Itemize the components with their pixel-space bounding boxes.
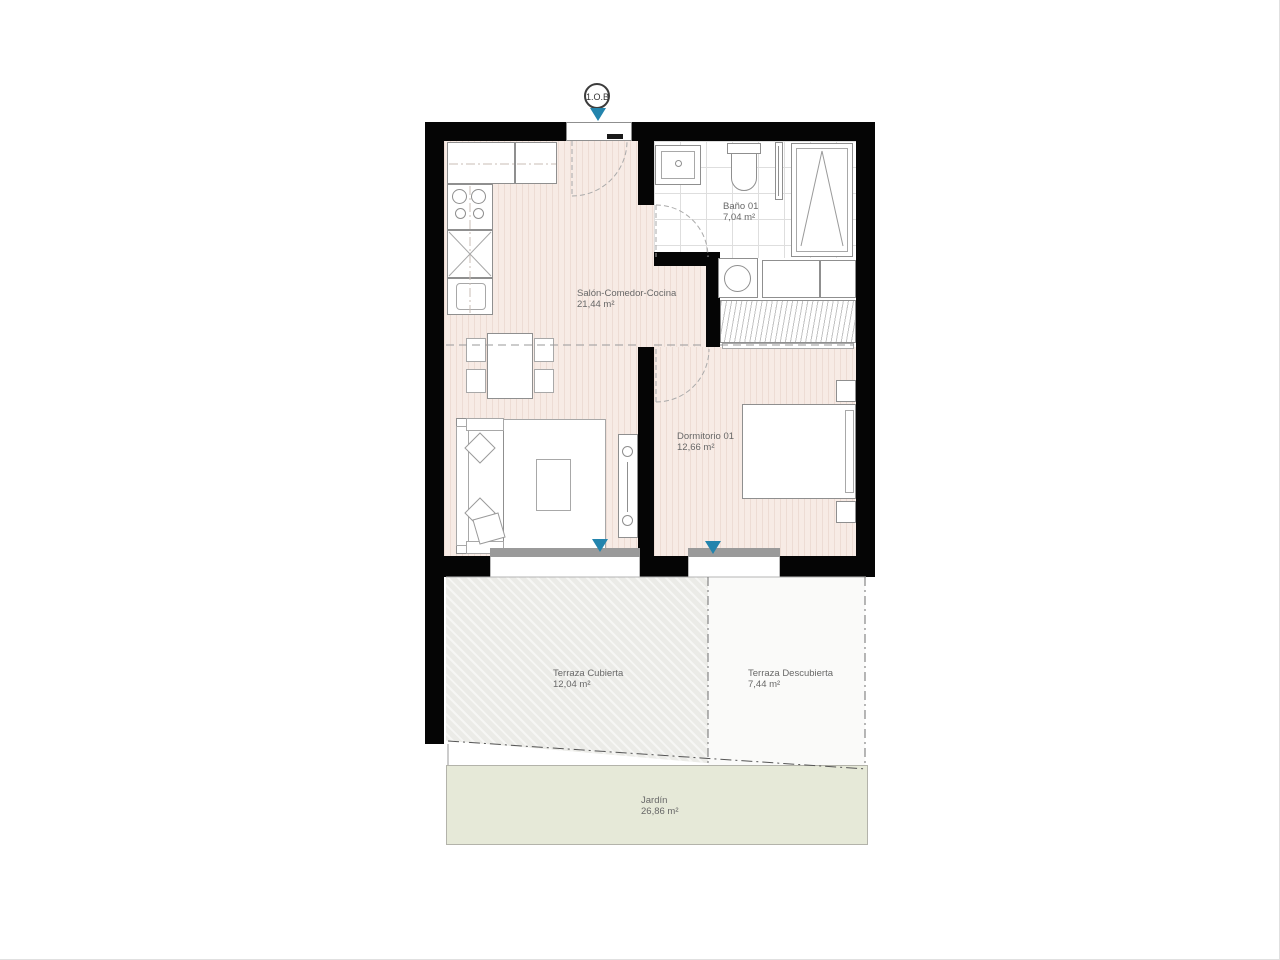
stove-burner [473,208,484,219]
coffee-table [536,459,571,511]
room-label-garden: Jardín 26,86 m² [641,795,679,817]
room-name: Salón-Comedor-Cocina [577,288,676,299]
unit-label-badge: 1.O.B [584,83,610,109]
living-window-marker-icon [592,539,608,552]
sink-drain [675,160,682,167]
room-name: Dormitorio 01 [677,431,734,442]
radiator-valve [622,446,633,457]
entrance-direction-marker-icon [590,108,606,121]
wall-bottom-right [780,556,867,577]
shower-tray-inner [796,148,848,252]
wardrobe-front-track [722,343,854,349]
bed [742,404,856,499]
wall-bottom-middle [640,556,688,577]
sofa-backrest [456,426,469,546]
floor-plan: 1.O.B [0,0,1280,960]
room-name: Baño 01 [723,201,758,212]
dining-table [487,333,533,399]
entrance-door-stop [607,134,623,139]
dining-chair [534,369,554,393]
room-area: 12,04 m² [553,679,623,690]
laundry-counter [762,260,820,298]
room-label-terrace-covered: Terraza Cubierta 12,04 m² [553,668,623,690]
room-area: 12,66 m² [677,442,734,453]
toilet-bowl [731,153,757,191]
room-name: Terraza Descubierta [748,668,833,679]
kitchen-counter-top-b [515,142,557,184]
room-area: 7,44 m² [748,679,833,690]
room-label-terrace-open: Terraza Descubierta 7,44 m² [748,668,833,690]
window-living [490,557,640,577]
window-sill-bedroom [688,548,780,557]
radiator-valve [622,515,633,526]
kitchen-cabinet [447,230,493,278]
room-area: 26,86 m² [641,806,679,817]
wall-bathroom-left [638,141,654,205]
towel-rail-bar [778,146,779,196]
dining-chair [466,338,486,362]
dining-chair [466,369,486,393]
room-area: 7,04 m² [723,212,758,223]
stove-burner [455,208,466,219]
room-label-living: Salón-Comedor-Cocina 21,44 m² [577,288,676,310]
wall-top-right [632,122,875,141]
wall-bedroom-left [638,347,654,560]
room-label-bedroom: Dormitorio 01 12,66 m² [677,431,734,453]
window-sill-living [490,548,640,557]
room-name: Terraza Cubierta [553,668,623,679]
washing-machine-drum [724,265,751,292]
bath-door-threshold-floor [640,205,654,258]
laundry-cabinet [820,260,856,298]
radiator-fin-line [627,462,628,512]
nightstand [836,380,856,402]
wall-left [425,141,444,744]
wardrobe [720,300,856,343]
room-label-bathroom: Baño 01 7,04 m² [723,201,758,223]
kitchen-sink-basin [456,283,486,310]
wall-right [856,141,875,577]
sofa-armrest [466,418,504,431]
stove-burner [471,189,486,204]
towel-rail [775,142,783,200]
window-bedroom [688,557,780,577]
room-name: Jardín [641,795,679,806]
dining-chair [534,338,554,362]
room-area: 21,44 m² [577,299,676,310]
wall-top-left [425,122,568,141]
wall-bathroom-bottom [654,252,714,266]
bed-pillow [845,410,854,493]
stove-burner [452,189,467,204]
bedroom-window-marker-icon [705,541,721,554]
wall-bottom-left [444,556,490,577]
kitchen-counter-top-a [447,142,515,184]
nightstand [836,501,856,523]
